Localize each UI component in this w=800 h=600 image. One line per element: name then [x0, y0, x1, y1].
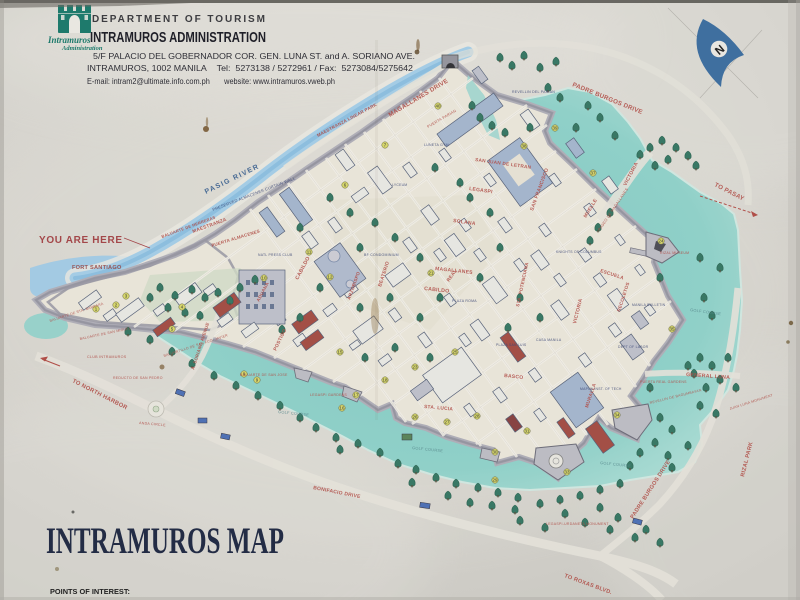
svg-text:Intramuros: Intramuros [47, 35, 91, 45]
svg-text:INTRAMUROS MAP: INTRAMUROS MAP [46, 521, 284, 562]
svg-text:INTRAMUROS ADMINISTRATION: INTRAMUROS ADMINISTRATION [90, 29, 266, 46]
svg-text:5/F PALACIO DEL GOBERNADOR COR: 5/F PALACIO DEL GOBERNADOR COR. GEN. LUN… [93, 51, 415, 61]
svg-text:INTRAMUROS, 1002 MANILA Tel: INTRAMUROS, 1002 MANILA Tel: 5273138 / 5… [87, 63, 413, 73]
svg-text:POINTS OF INTEREST:: POINTS OF INTEREST: [50, 587, 130, 596]
svg-text:E-mail: intram2@ultimate.info.: E-mail: intram2@ultimate.info.com.ph web… [87, 76, 335, 86]
